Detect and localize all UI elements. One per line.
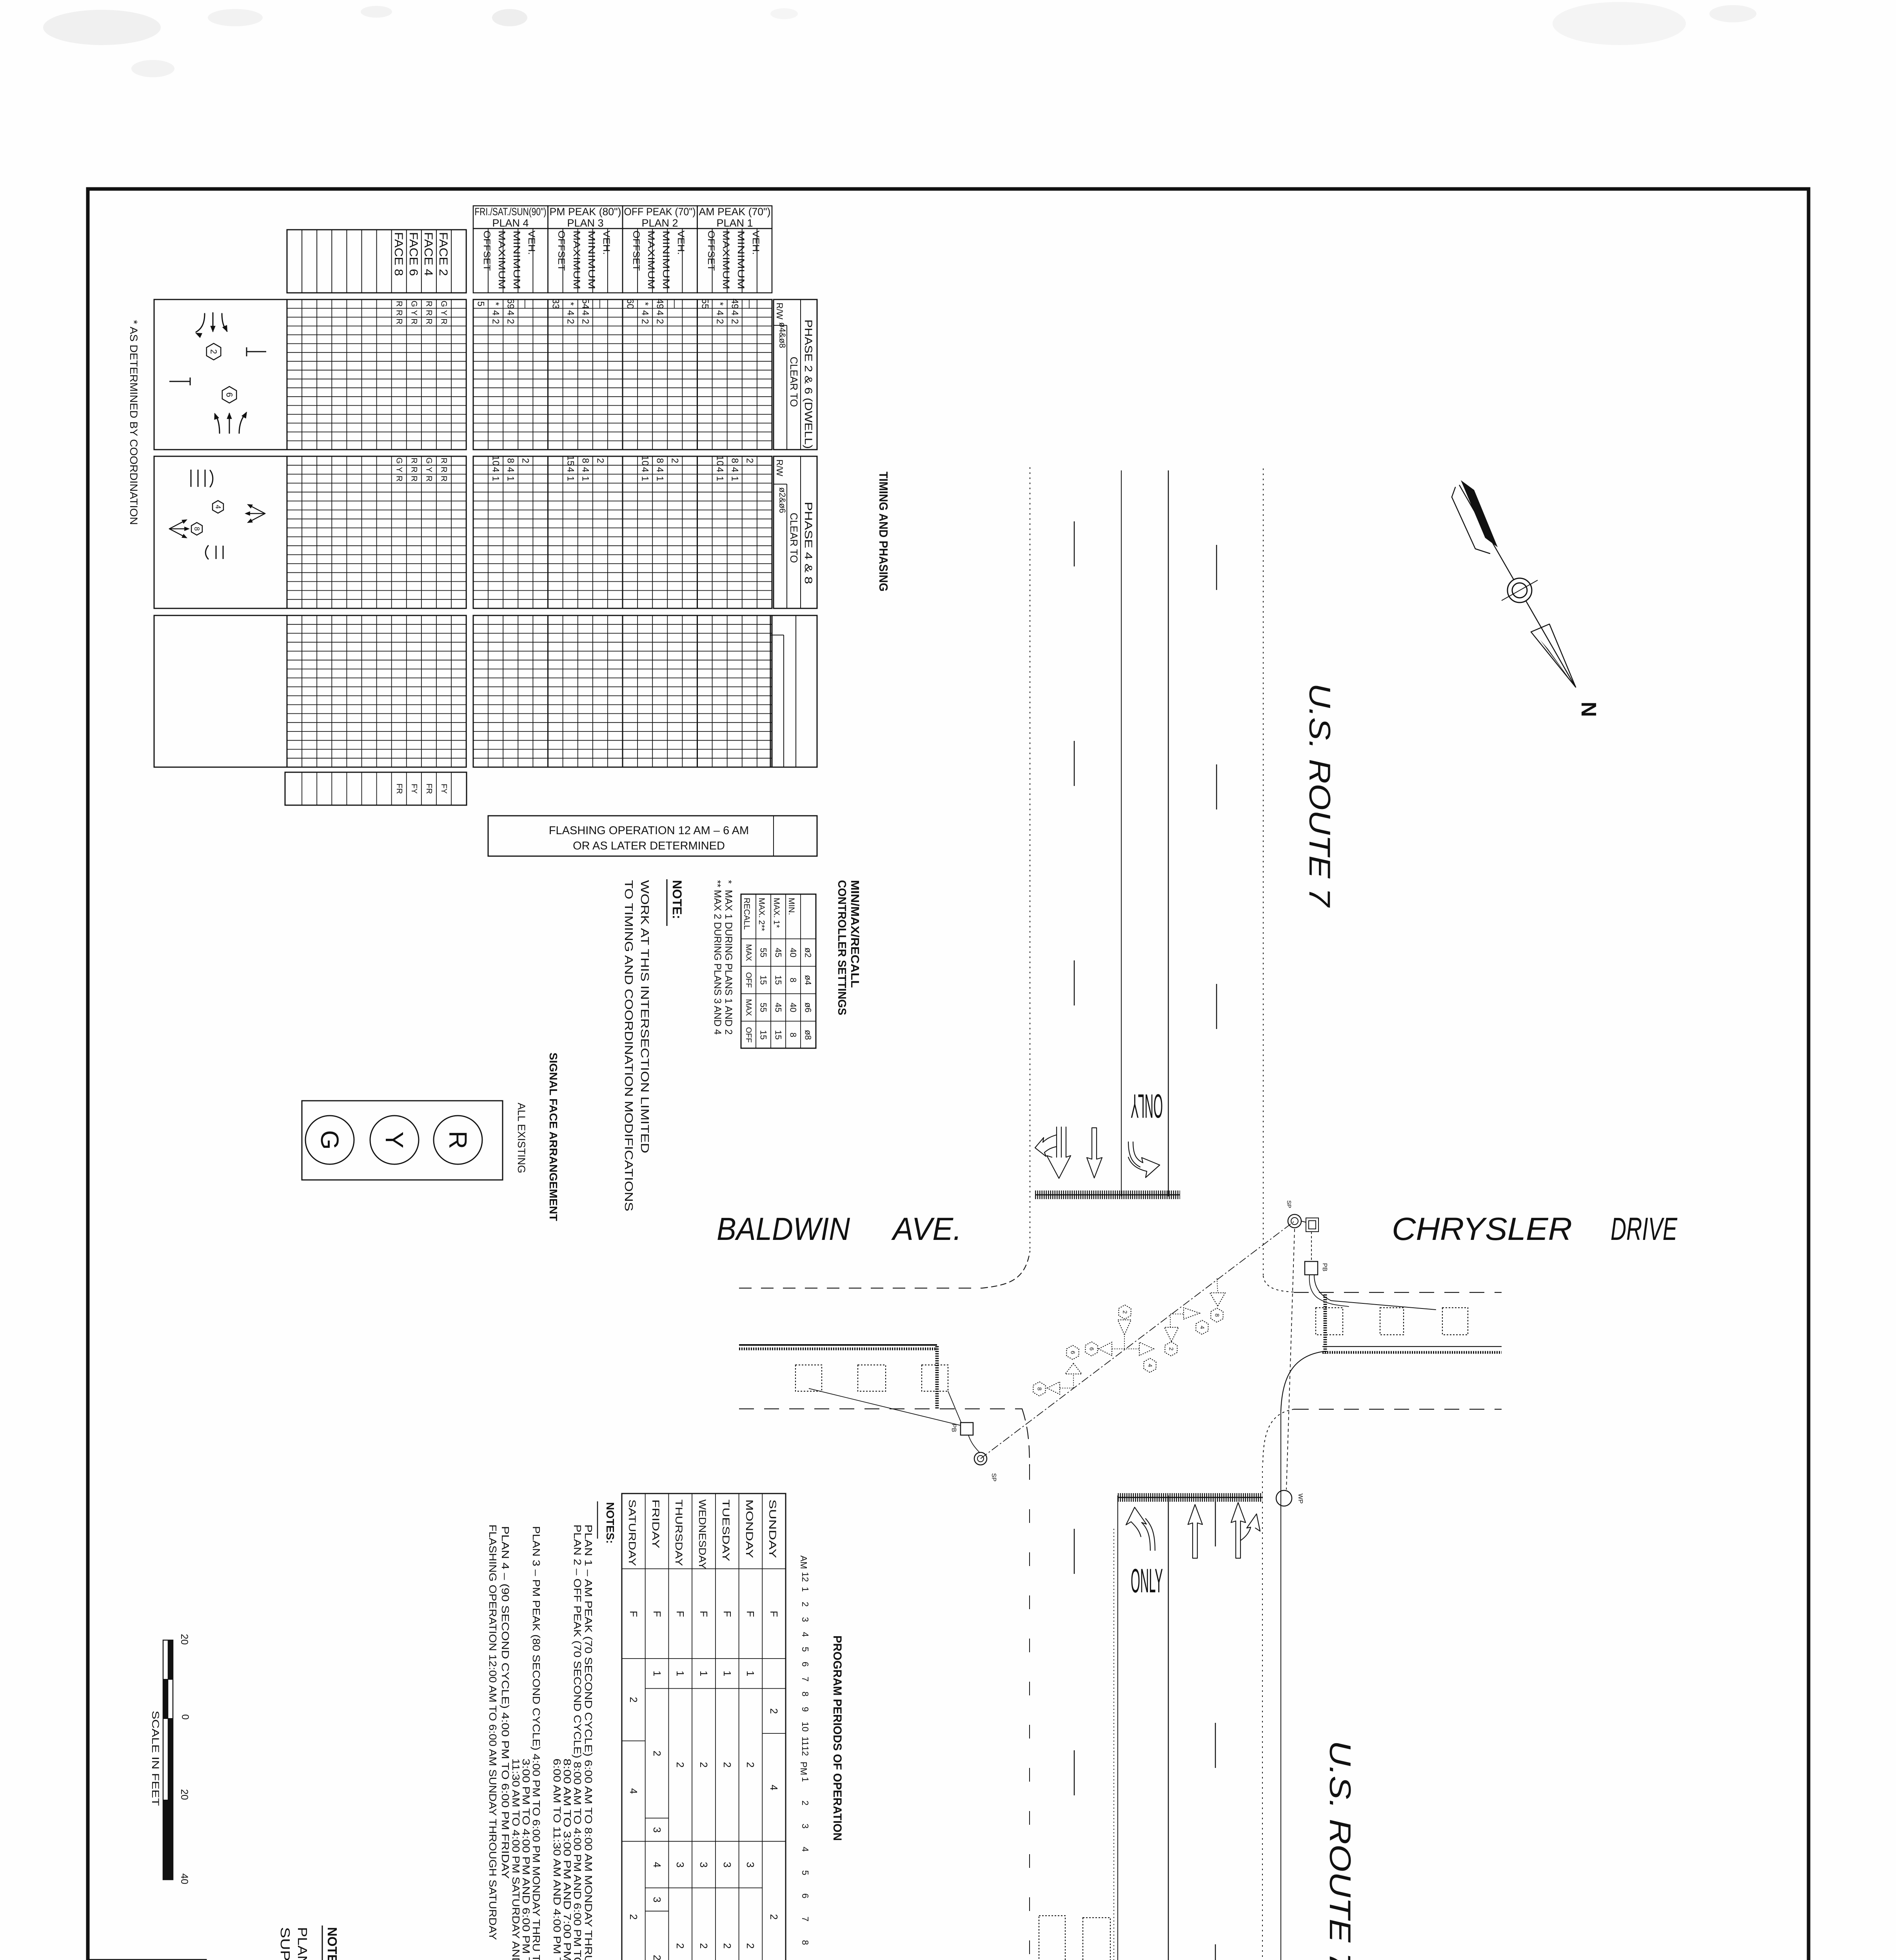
- svg-text:2: 2: [745, 458, 755, 463]
- svg-text:WORK AT THIS INTERSECTION LIMI: WORK AT THIS INTERSECTION LIMITED: [638, 880, 651, 1153]
- svg-text:1: 1: [800, 1587, 810, 1592]
- svg-text:54: 54: [580, 299, 591, 309]
- svg-text:12: 12: [800, 1746, 810, 1756]
- svg-text:2: 2: [655, 319, 665, 324]
- svg-text:—: —: [520, 299, 531, 309]
- svg-text:1: 1: [505, 476, 516, 481]
- svg-text:4: 4: [1147, 1364, 1153, 1367]
- svg-text:4: 4: [505, 310, 516, 315]
- svg-text:15: 15: [759, 1030, 768, 1040]
- svg-text:R: R: [410, 457, 419, 463]
- svg-text:—: —: [670, 299, 680, 309]
- svg-text:AM: AM: [799, 1555, 809, 1569]
- svg-text:OFF: OFF: [744, 972, 753, 988]
- svg-text:10: 10: [490, 456, 501, 466]
- svg-text:FR: FR: [395, 784, 403, 794]
- svg-text:1: 1: [800, 1777, 810, 1782]
- svg-text:5: 5: [476, 301, 486, 306]
- svg-text:7: 7: [800, 1916, 810, 1922]
- svg-text:FRIDAY: FRIDAY: [650, 1499, 661, 1548]
- svg-text:6: 6: [800, 1893, 810, 1898]
- svg-text:ø8: ø8: [803, 1030, 813, 1040]
- svg-text:TUESDAY: TUESDAY: [720, 1499, 731, 1561]
- svg-text:2: 2: [628, 1914, 639, 1920]
- svg-text:R/W: R/W: [775, 303, 785, 319]
- svg-text:20: 20: [179, 1634, 190, 1645]
- svg-text:10: 10: [715, 456, 725, 466]
- svg-text:PLAN 4: PLAN 4: [492, 217, 528, 229]
- svg-text:2: 2: [698, 1762, 710, 1768]
- svg-text:2: 2: [670, 458, 680, 463]
- svg-text:1: 1: [698, 1671, 710, 1676]
- svg-text:8: 8: [788, 978, 798, 982]
- svg-text:15: 15: [759, 975, 768, 985]
- svg-text:40: 40: [788, 948, 798, 957]
- svg-text:4: 4: [651, 1862, 663, 1867]
- svg-text:OR AS LATER DETERMINED: OR AS LATER DETERMINED: [573, 840, 725, 852]
- svg-text:4: 4: [565, 310, 576, 315]
- svg-text:N: N: [1577, 702, 1600, 717]
- svg-text:U.S. ROUTE 7: U.S. ROUTE 7: [1303, 683, 1336, 908]
- svg-text:MAX. 2**: MAX. 2**: [757, 898, 766, 931]
- svg-text:—: —: [745, 299, 755, 309]
- svg-text:2: 2: [651, 1751, 663, 1756]
- svg-text:2: 2: [768, 1708, 780, 1714]
- svg-text:2: 2: [698, 1943, 710, 1949]
- svg-text:4: 4: [640, 467, 650, 472]
- svg-text:8: 8: [193, 527, 201, 531]
- svg-text:2: 2: [1168, 1347, 1175, 1350]
- svg-text:TO TIMING AND COORDINATION MOD: TO TIMING AND COORDINATION MODIFICATIONS: [622, 880, 635, 1211]
- svg-text:FLASHING OPERATION 12 AM – 6 A: FLASHING OPERATION 12 AM – 6 AM: [549, 824, 749, 837]
- svg-text:FLASHING OPERATION 12:00 AM TO: FLASHING OPERATION 12:00 AM TO 6:00 AM S…: [487, 1524, 499, 1940]
- svg-text:R: R: [425, 475, 434, 481]
- svg-text:* AS DETERMINED BY COORDINATIO: * AS DETERMINED BY COORDINATION: [128, 320, 140, 525]
- svg-text:RECALL: RECALL: [742, 898, 751, 930]
- svg-text:1: 1: [715, 476, 725, 481]
- svg-text:6: 6: [800, 1662, 810, 1667]
- svg-text:PROGRAM PERIODS OF OPERATION: PROGRAM PERIODS OF OPERATION: [831, 1635, 844, 1841]
- svg-text:PM PEAK (80"): PM PEAK (80"): [550, 206, 621, 218]
- svg-text:ø2&ø6: ø2&ø6: [777, 487, 787, 513]
- svg-text:R: R: [439, 318, 449, 324]
- svg-text:2: 2: [490, 319, 501, 324]
- svg-text:*: *: [640, 302, 650, 305]
- svg-text:PB: PB: [1321, 1263, 1328, 1271]
- svg-text:OFFSET: OFFSET: [556, 230, 567, 271]
- svg-text:Y: Y: [439, 310, 449, 316]
- svg-text:45: 45: [774, 1003, 783, 1012]
- svg-text:4: 4: [214, 505, 222, 509]
- svg-text:PHASE 2 & 6 (DWELL): PHASE 2 & 6 (DWELL): [803, 319, 814, 449]
- svg-text:MIN.: MIN.: [787, 898, 796, 915]
- svg-text:60: 60: [625, 299, 636, 309]
- svg-text:4: 4: [800, 1847, 810, 1852]
- svg-text:MONDAY: MONDAY: [744, 1499, 755, 1558]
- svg-text:4: 4: [655, 467, 665, 472]
- svg-text:4: 4: [490, 467, 501, 472]
- svg-text:4: 4: [628, 1788, 639, 1794]
- svg-text:8: 8: [788, 1033, 798, 1037]
- svg-text:G: G: [395, 457, 404, 464]
- svg-text:2: 2: [505, 319, 516, 324]
- svg-text:*: *: [723, 880, 734, 884]
- svg-text:FR: FR: [425, 784, 433, 794]
- svg-text:ø2: ø2: [803, 947, 813, 958]
- svg-text:MIN/MAX/RECALL: MIN/MAX/RECALL: [848, 880, 861, 988]
- svg-text:SCALE IN FEET: SCALE IN FEET: [150, 1711, 161, 1806]
- svg-text:2: 2: [745, 1943, 756, 1949]
- svg-text:FACE 4: FACE 4: [422, 232, 435, 276]
- svg-text:MINIMUM: MINIMUM: [586, 230, 597, 289]
- svg-text:R: R: [410, 466, 419, 472]
- svg-text:**: **: [712, 880, 723, 887]
- svg-text:2: 2: [800, 1602, 810, 1607]
- svg-text:Y: Y: [410, 310, 419, 316]
- svg-text:8: 8: [800, 1940, 810, 1945]
- svg-text:R: R: [439, 475, 449, 481]
- svg-text:PHASE 4 & 8: PHASE 4 & 8: [803, 502, 814, 584]
- svg-text:10: 10: [640, 456, 650, 466]
- svg-text:55: 55: [700, 299, 710, 309]
- svg-text:R: R: [444, 1131, 472, 1149]
- svg-text:G: G: [439, 301, 449, 307]
- svg-text:8: 8: [505, 458, 516, 463]
- svg-text:WP: WP: [1297, 1494, 1304, 1504]
- svg-text:NOTE:: NOTE:: [670, 880, 684, 919]
- svg-text:4: 4: [580, 310, 591, 315]
- svg-text:PLAN 1: PLAN 1: [716, 217, 753, 229]
- svg-text:1: 1: [565, 476, 576, 481]
- svg-text:G: G: [425, 457, 434, 464]
- svg-text:3: 3: [745, 1862, 756, 1867]
- svg-text:20: 20: [179, 1789, 190, 1800]
- svg-text:SP: SP: [990, 1473, 997, 1481]
- svg-text:49: 49: [730, 299, 740, 309]
- svg-text:4: 4: [505, 467, 516, 472]
- svg-text:MAX 1 DURING PLANS 1 AND 2: MAX 1 DURING PLANS 1 AND 2: [723, 890, 734, 1035]
- svg-text:FACE 2: FACE 2: [437, 232, 450, 276]
- svg-text:2: 2: [745, 1762, 756, 1768]
- svg-text:3: 3: [721, 1862, 733, 1867]
- svg-text:49: 49: [655, 299, 665, 309]
- svg-text:F: F: [721, 1611, 733, 1617]
- svg-text:*: *: [715, 302, 725, 305]
- svg-text:4: 4: [715, 467, 725, 472]
- svg-text:F: F: [698, 1611, 710, 1617]
- svg-text:—: —: [595, 299, 606, 309]
- svg-text:NOTES:: NOTES:: [604, 1502, 616, 1544]
- svg-text:4: 4: [715, 310, 725, 315]
- svg-text:F: F: [628, 1611, 639, 1617]
- svg-text:1: 1: [674, 1671, 686, 1676]
- svg-text:2: 2: [674, 1943, 686, 1949]
- svg-text:OFFSET: OFFSET: [706, 230, 716, 271]
- svg-text:AM PEAK (70"): AM PEAK (70"): [699, 206, 771, 218]
- svg-text:MAX: MAX: [744, 999, 753, 1016]
- svg-text:2: 2: [730, 319, 740, 324]
- svg-text:15: 15: [774, 1030, 783, 1040]
- svg-text:2: 2: [209, 349, 219, 354]
- svg-text:R: R: [395, 318, 404, 324]
- svg-text:PLAN PREPARED FROM BASE DATA: PLAN PREPARED FROM BASE DATA: [295, 1927, 310, 1960]
- svg-text:55: 55: [759, 948, 768, 957]
- svg-text:15: 15: [774, 975, 783, 985]
- svg-text:SUPPLIED BY VAOT, FEGC 019-4(1: SUPPLIED BY VAOT, FEGC 019-4(19)C/1: [278, 1927, 292, 1960]
- svg-text:CONTROLLER SETTINGS: CONTROLLER SETTINGS: [835, 880, 848, 1015]
- svg-text:MINIMUM: MINIMUM: [661, 230, 671, 289]
- svg-text:8: 8: [580, 458, 591, 463]
- svg-text:FACE 6: FACE 6: [407, 232, 420, 276]
- svg-text:45: 45: [774, 948, 783, 957]
- svg-text:55: 55: [759, 1003, 768, 1012]
- svg-text:PLAN 4 – (90 SECOND CYCLE) 4:0: PLAN 4 – (90 SECOND CYCLE) 4:00 PM TO 6:…: [499, 1526, 511, 1879]
- svg-text:8: 8: [1036, 1387, 1043, 1390]
- svg-text:3: 3: [674, 1862, 686, 1867]
- svg-text:2: 2: [520, 458, 531, 463]
- svg-text:3: 3: [800, 1617, 810, 1622]
- svg-text:MAX 2 DURING PLANS 3 AND 4: MAX 2 DURING PLANS 3 AND 4: [712, 890, 723, 1035]
- svg-text:THURSDAY: THURSDAY: [673, 1499, 684, 1566]
- svg-text:U.S. ROUTE 7: U.S. ROUTE 7: [1323, 1740, 1357, 1960]
- svg-text:8: 8: [655, 458, 665, 463]
- svg-text:CHRYSLER: CHRYSLER: [1392, 1211, 1572, 1247]
- svg-text:11:30 AM TO 4:00 PM SATURDAY A: 11:30 AM TO 4:00 PM SATURDAY AND SUNDAY: [510, 1759, 522, 1960]
- svg-text:Y: Y: [380, 1132, 409, 1149]
- svg-text:PLAN 1 – AM PEAK (70 SECOND CY: PLAN 1 – AM PEAK (70 SECOND CYCLE) 6:00 …: [583, 1524, 594, 1960]
- svg-text:6:00 AM TO 11:30 AM AND 4:00: 6:00 AM TO 11:30 AM AND 4:00 PM TO 12:00…: [551, 1759, 563, 1960]
- svg-text:2: 2: [674, 1762, 686, 1768]
- svg-text:R: R: [410, 475, 419, 481]
- svg-text:OFFSET: OFFSET: [631, 230, 641, 271]
- svg-text:2: 2: [628, 1697, 639, 1702]
- svg-text:7: 7: [800, 1677, 810, 1682]
- svg-text:MAX. 1*: MAX. 1*: [772, 898, 781, 928]
- svg-text:ALL EXISTING: ALL EXISTING: [516, 1103, 527, 1173]
- svg-text:4: 4: [800, 1632, 810, 1637]
- svg-text:DRIVE: DRIVE: [1611, 1211, 1678, 1247]
- svg-text:4: 4: [580, 467, 591, 472]
- svg-text:6: 6: [1088, 1347, 1095, 1350]
- svg-text:*: *: [565, 302, 576, 305]
- svg-text:R: R: [410, 318, 419, 324]
- svg-text:ø6: ø6: [803, 1002, 813, 1013]
- svg-text:VEH.: VEH.: [676, 230, 686, 255]
- svg-text:CLEAR TO: CLEAR TO: [788, 513, 800, 563]
- svg-text:SUNDAY: SUNDAY: [767, 1499, 778, 1558]
- svg-text:OFF: OFF: [744, 1027, 753, 1043]
- svg-text:6: 6: [225, 392, 234, 397]
- svg-text:R: R: [439, 466, 449, 472]
- svg-text:WEDNESDAY: WEDNESDAY: [697, 1499, 708, 1569]
- svg-text:OFFSET: OFFSET: [481, 230, 492, 271]
- svg-text:4: 4: [1199, 1326, 1206, 1329]
- svg-text:1: 1: [745, 1671, 756, 1676]
- svg-text:*: *: [490, 302, 501, 305]
- svg-text:2: 2: [721, 1762, 733, 1768]
- svg-text:FRI./SAT./SUN(90"): FRI./SAT./SUN(90"): [475, 206, 547, 218]
- svg-text:3: 3: [698, 1862, 710, 1867]
- svg-text:MAXIMUM: MAXIMUM: [496, 230, 507, 289]
- svg-text:3: 3: [800, 1824, 810, 1829]
- svg-text:FACE 8: FACE 8: [392, 232, 405, 276]
- svg-text:8: 8: [1214, 1314, 1220, 1317]
- svg-text:FY: FY: [410, 784, 418, 794]
- svg-text:NOTE:: NOTE:: [325, 1927, 340, 1960]
- svg-text:3: 3: [651, 1827, 663, 1833]
- svg-text:Y: Y: [395, 467, 404, 472]
- svg-text:SATURDAY: SATURDAY: [627, 1499, 637, 1566]
- svg-text:PLAN 2: PLAN 2: [641, 217, 678, 229]
- svg-text:1: 1: [640, 476, 650, 481]
- svg-text:G: G: [410, 301, 419, 307]
- svg-text:F: F: [768, 1611, 780, 1617]
- svg-text:VEH.: VEH.: [601, 230, 612, 255]
- svg-text:1: 1: [655, 476, 665, 481]
- svg-text:MAXIMUM: MAXIMUM: [646, 230, 656, 289]
- svg-text:Y: Y: [425, 467, 434, 472]
- svg-text:0: 0: [180, 1714, 191, 1720]
- svg-text:4: 4: [640, 310, 650, 315]
- svg-text:R: R: [395, 310, 404, 316]
- svg-text:R: R: [439, 457, 449, 463]
- svg-text:4: 4: [730, 467, 740, 472]
- svg-text:5: 5: [800, 1870, 810, 1875]
- svg-text:10: 10: [800, 1722, 810, 1732]
- svg-text:2: 2: [768, 1914, 780, 1920]
- svg-text:MINIMUM: MINIMUM: [511, 230, 522, 289]
- svg-text:MAXIMUM: MAXIMUM: [571, 230, 582, 289]
- svg-text:1: 1: [580, 476, 591, 481]
- svg-text:SP: SP: [1286, 1200, 1292, 1208]
- svg-text:ø4&ø8: ø4&ø8: [777, 322, 787, 348]
- svg-text:2: 2: [721, 1943, 733, 1949]
- svg-text:2: 2: [595, 458, 606, 463]
- svg-text:8: 8: [730, 458, 740, 463]
- svg-text:MAXIMUM: MAXIMUM: [721, 230, 731, 289]
- svg-text:R: R: [425, 310, 434, 316]
- svg-text:11: 11: [800, 1737, 810, 1746]
- svg-text:6: 6: [1070, 1351, 1076, 1354]
- svg-text:SIGNAL FACE ARRANGEMENT: SIGNAL FACE ARRANGEMENT: [547, 1053, 559, 1221]
- svg-text:VEH.: VEH.: [750, 230, 761, 255]
- svg-text:4: 4: [490, 310, 501, 315]
- svg-text:MAX: MAX: [744, 944, 753, 961]
- svg-text:2: 2: [800, 1800, 810, 1806]
- svg-text:2: 2: [1122, 1310, 1128, 1314]
- svg-text:9: 9: [800, 1707, 810, 1712]
- svg-text:8: 8: [800, 1691, 810, 1697]
- svg-text:CLEAR TO: CLEAR TO: [788, 357, 800, 407]
- svg-text:69: 69: [505, 299, 516, 309]
- svg-text:4: 4: [565, 467, 576, 472]
- svg-text:1: 1: [651, 1671, 663, 1676]
- svg-text:R: R: [395, 301, 404, 307]
- svg-text:33: 33: [550, 299, 561, 309]
- svg-text:ø4: ø4: [803, 975, 813, 985]
- svg-text:R: R: [395, 475, 404, 481]
- svg-text:5: 5: [800, 1647, 810, 1652]
- svg-text:40: 40: [788, 1003, 798, 1012]
- svg-text:F: F: [651, 1611, 663, 1617]
- svg-text:4: 4: [655, 310, 665, 315]
- svg-text:2: 2: [651, 1955, 663, 1960]
- svg-text:G: G: [316, 1130, 344, 1150]
- svg-text:AVE.: AVE.: [891, 1211, 962, 1247]
- svg-text:TIMING AND PHASING: TIMING AND PHASING: [877, 472, 890, 592]
- svg-text:PLAN 3: PLAN 3: [567, 217, 603, 229]
- svg-text:1: 1: [730, 476, 740, 481]
- svg-text:3: 3: [651, 1897, 663, 1902]
- svg-text:VEH.: VEH.: [526, 230, 537, 255]
- svg-text:15: 15: [565, 456, 576, 466]
- svg-text:40: 40: [179, 1873, 190, 1884]
- svg-text:1: 1: [490, 476, 501, 481]
- svg-text:PM: PM: [799, 1762, 809, 1775]
- svg-text:4: 4: [730, 310, 740, 315]
- svg-text:R/W: R/W: [775, 459, 785, 476]
- svg-text:2: 2: [565, 319, 576, 324]
- svg-text:MINIMUM: MINIMUM: [736, 230, 746, 289]
- svg-text:F: F: [674, 1611, 686, 1617]
- svg-text:R: R: [425, 301, 434, 307]
- svg-text:F: F: [745, 1611, 756, 1617]
- svg-text:12: 12: [800, 1572, 810, 1582]
- svg-text:FY: FY: [439, 784, 448, 794]
- svg-text:BALDWIN: BALDWIN: [717, 1211, 850, 1247]
- svg-text:4: 4: [768, 1785, 780, 1790]
- svg-text:2: 2: [715, 319, 725, 324]
- svg-text:2: 2: [640, 319, 650, 324]
- svg-text:1: 1: [721, 1671, 733, 1676]
- svg-text:ONLY: ONLY: [1131, 1562, 1163, 1600]
- svg-text:ONLY: ONLY: [1131, 1087, 1163, 1125]
- svg-text:R: R: [425, 318, 434, 324]
- svg-text:PB: PB: [950, 1424, 957, 1432]
- svg-text:2: 2: [580, 319, 591, 324]
- svg-text:OFF PEAK (70"): OFF PEAK (70"): [624, 206, 696, 218]
